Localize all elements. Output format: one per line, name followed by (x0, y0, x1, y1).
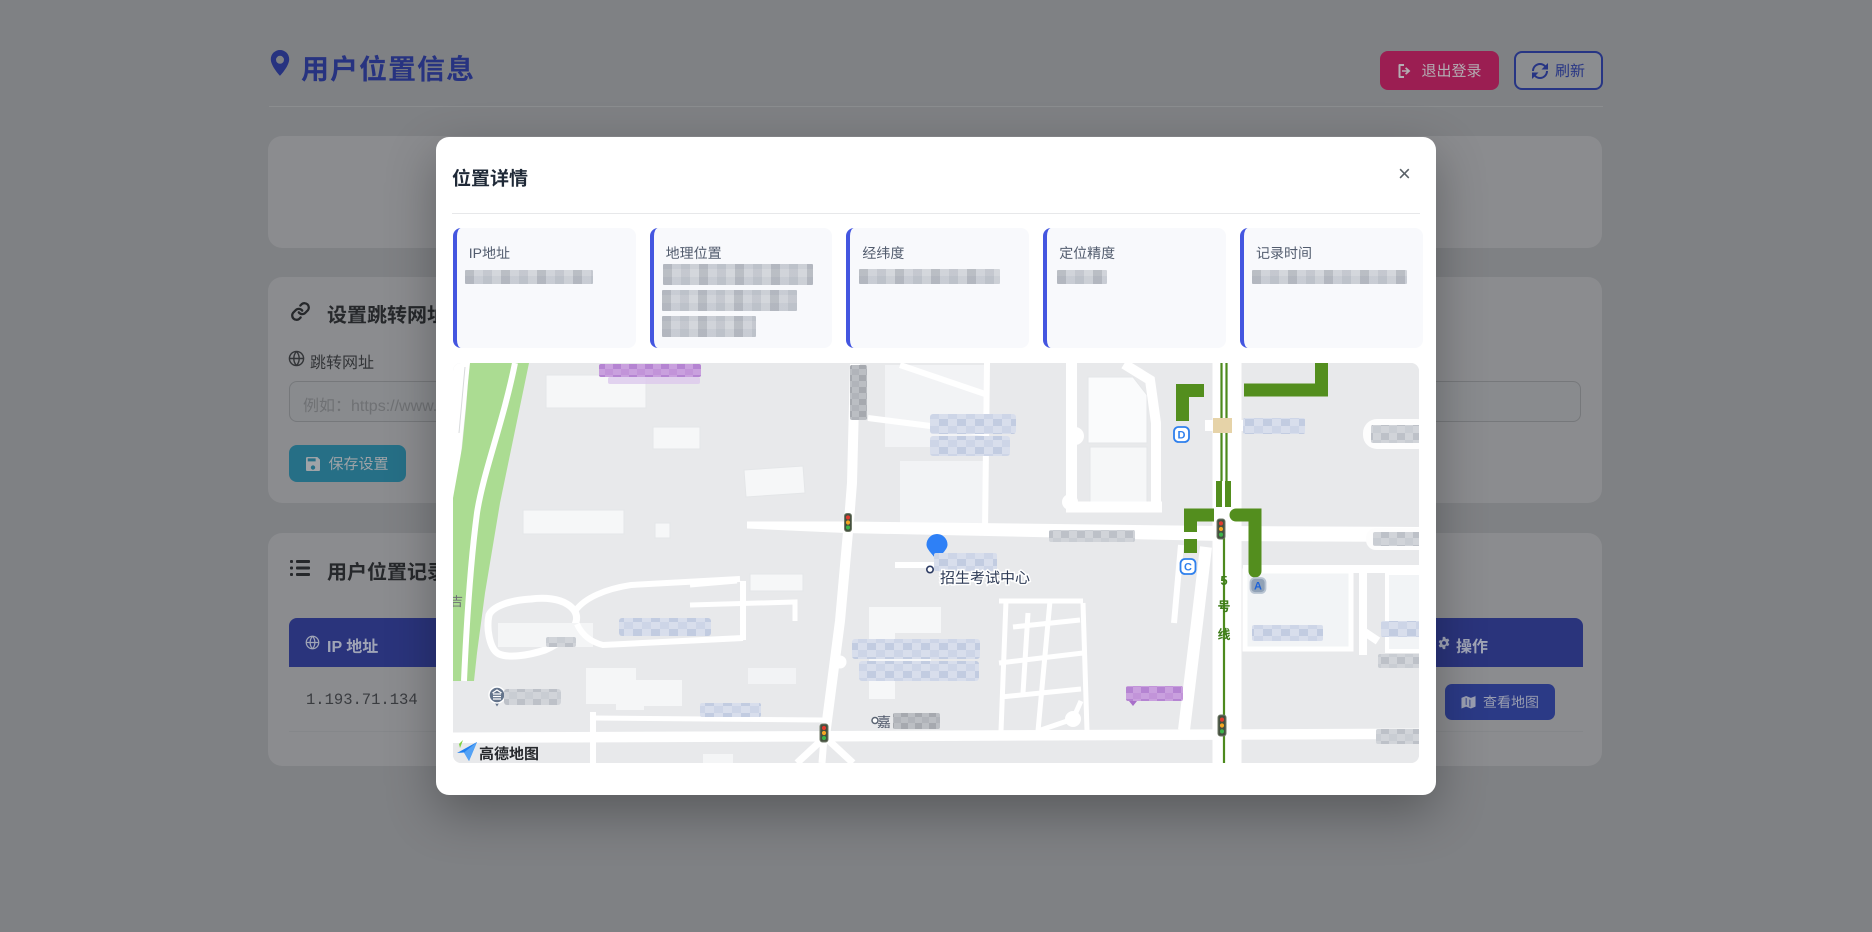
svg-text:5: 5 (1220, 573, 1227, 588)
svg-text:A: A (1254, 580, 1262, 592)
svg-text:嘉: 嘉 (877, 714, 891, 730)
svg-text:招生考试中心: 招生考试中心 (940, 570, 1030, 587)
svg-text:吉: 吉 (453, 594, 463, 609)
svg-text:D: D (1177, 429, 1185, 441)
svg-text:高德地图: 高德地图 (479, 746, 539, 763)
svg-text:C: C (1184, 561, 1192, 573)
svg-text:线: 线 (1217, 627, 1230, 642)
svg-text:号: 号 (1217, 599, 1230, 614)
